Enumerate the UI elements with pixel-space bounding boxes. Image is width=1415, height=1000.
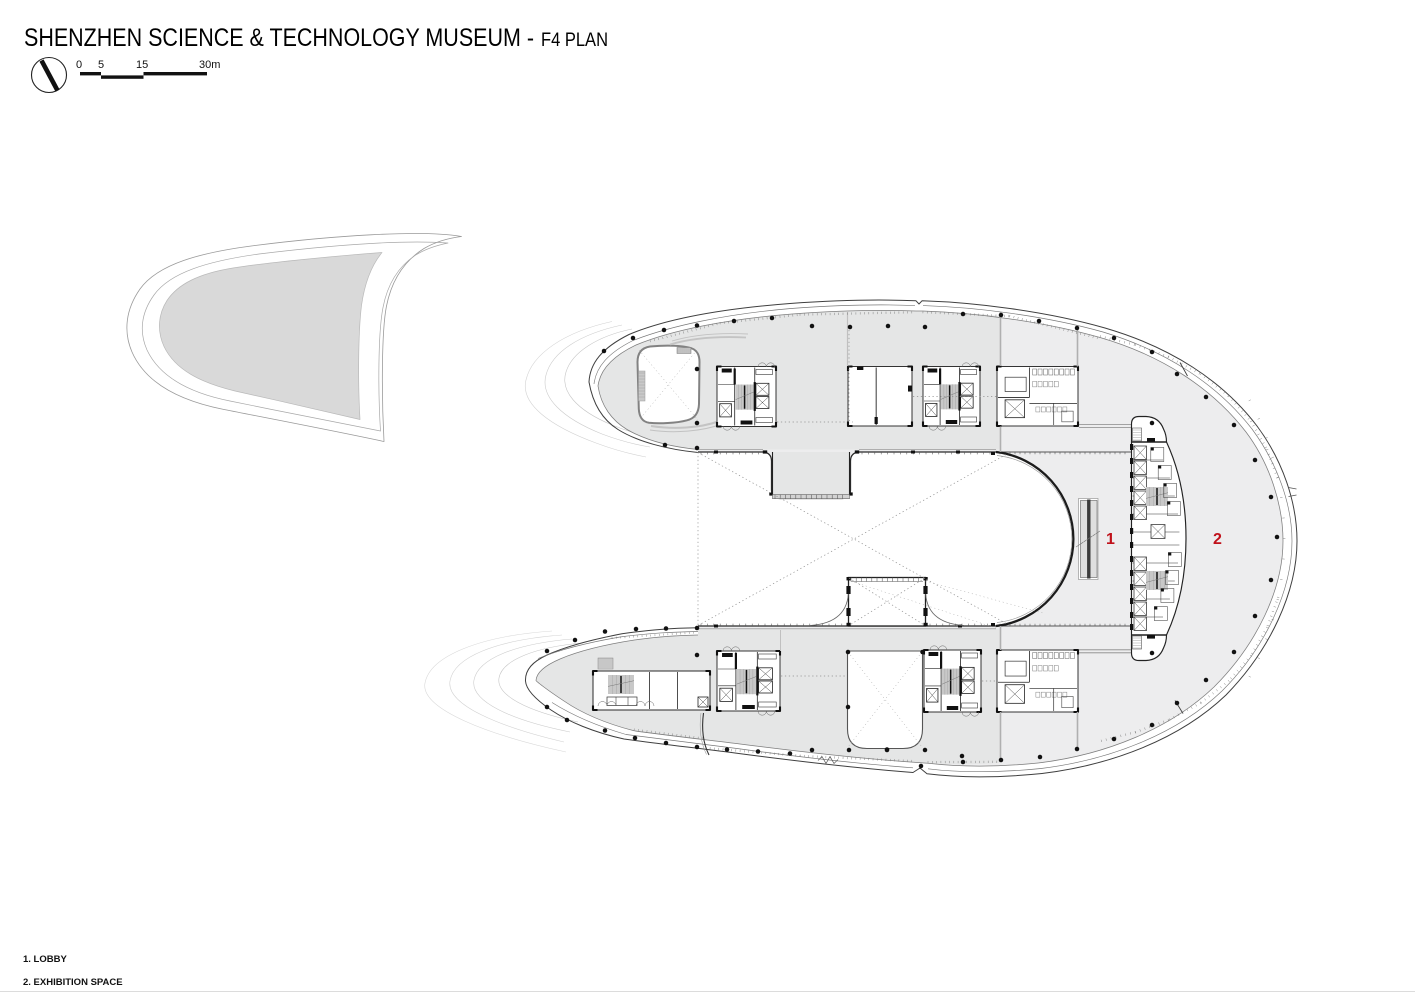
svg-text:1: 1: [1106, 531, 1115, 548]
svg-text:5: 5: [98, 59, 104, 71]
svg-text:SHENZHEN SCIENCE & TECHNOLOGY: SHENZHEN SCIENCE & TECHNOLOGY MUSEUM -: [24, 24, 534, 52]
svg-text:0: 0: [76, 59, 82, 71]
svg-text:2: 2: [1213, 531, 1222, 548]
svg-text:30m: 30m: [199, 59, 220, 71]
svg-text:15: 15: [136, 59, 148, 71]
svg-text:2. EXHIBITION SPACE: 2. EXHIBITION SPACE: [23, 977, 123, 988]
svg-text:1. LOBBY: 1. LOBBY: [23, 954, 67, 965]
svg-text:F4 PLAN: F4 PLAN: [541, 29, 608, 51]
